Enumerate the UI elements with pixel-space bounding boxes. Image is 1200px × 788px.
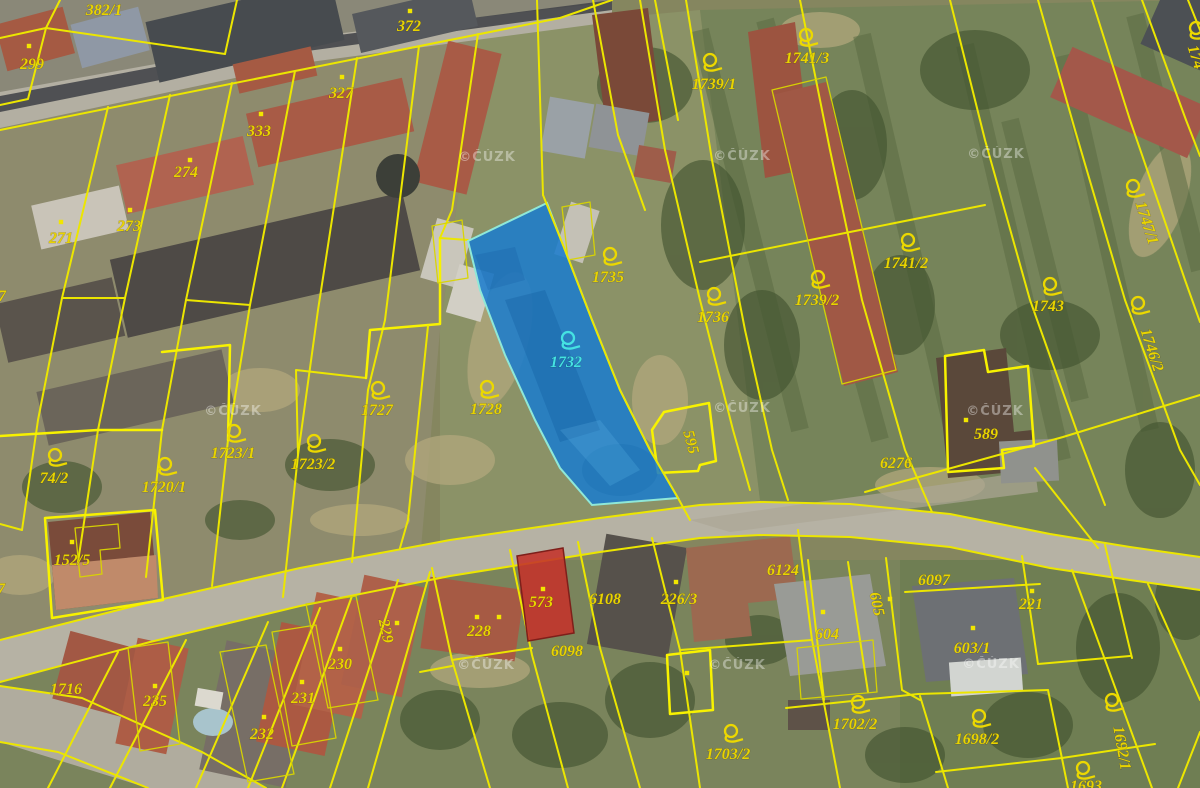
parcel-label: 299 <box>19 56 44 73</box>
parcel-label: 1741/3 <box>785 50 829 67</box>
building-point-icon <box>153 684 157 688</box>
parcel-label: 1698/2 <box>955 731 999 748</box>
cadastral-map-image[interactable]: 382/12993273332742732713721739/11741/317… <box>0 0 1200 788</box>
building-point-icon <box>475 615 479 619</box>
building-point-icon <box>541 587 545 591</box>
parcel-label: 333 <box>246 123 271 140</box>
parcel-label: 1735 <box>592 269 624 286</box>
parcel-label: 274 <box>173 164 198 181</box>
parcel-label: 1727 <box>361 402 394 419</box>
parcel-label: 221 <box>1018 596 1043 613</box>
parcel-label: 228 <box>466 623 491 640</box>
building-point-icon <box>674 580 678 584</box>
parcel-label: 1720/1 <box>142 479 186 496</box>
parcel-label: 273 <box>116 218 141 235</box>
parcel-label: 1702/2 <box>833 716 877 733</box>
parcel-label: 372 <box>396 18 421 35</box>
parcel-label: 1723/2 <box>291 456 335 473</box>
parcel-6098: 6098 <box>551 643 583 660</box>
cuzk-watermark: ©ČÚZK <box>962 656 1020 672</box>
map-viewport[interactable]: 382/12993273332742732713721739/11741/317… <box>0 0 1200 788</box>
parcel-6108: 6108 <box>589 591 621 608</box>
parcel-label: 271 <box>48 230 73 247</box>
building-point-icon <box>338 647 342 651</box>
parcel-label: 1703/2 <box>706 746 750 763</box>
parcel-label: 6098 <box>551 643 583 660</box>
parcel-label: 1693 <box>1070 778 1102 788</box>
parcel-label: 589 <box>974 426 998 443</box>
cuzk-watermark: ©ČÚZK <box>713 400 771 416</box>
building-point-icon <box>128 208 132 212</box>
parcel-6097: 6097 <box>918 572 951 589</box>
parcel-label: 226/3 <box>660 591 697 608</box>
parcel-label: 232 <box>249 726 274 743</box>
parcel-7: 7 <box>0 288 7 305</box>
parcel-6276: 6276 <box>880 455 912 472</box>
parcel-label: 327 <box>328 85 354 102</box>
building-point-icon <box>27 44 31 48</box>
parcel-label: 382/1 <box>85 2 122 19</box>
building-point-icon <box>408 9 412 13</box>
parcel-label: 6276 <box>880 455 912 472</box>
building-point-icon <box>497 615 501 619</box>
building-point-icon <box>262 715 266 719</box>
parcel-label: 1741/2 <box>884 255 928 272</box>
parcel-label: 152/5 <box>54 552 90 569</box>
building-point-icon <box>888 597 892 601</box>
parcel-label: 235 <box>142 693 167 710</box>
building-point-icon <box>188 158 192 162</box>
parcel-label: 6108 <box>589 591 621 608</box>
parcel-label: 1728 <box>470 401 502 418</box>
parcel-label: 1723/1 <box>211 445 255 462</box>
parcel-1716: 1716 <box>50 681 82 698</box>
parcel-label: 1716 <box>50 681 82 698</box>
building-point-icon <box>259 112 263 116</box>
parcel-label: 230 <box>327 656 352 673</box>
parcel-382-1: 382/1 <box>85 2 122 19</box>
parcel-label: 1732 <box>550 354 582 371</box>
building-point-icon <box>685 671 689 675</box>
parcel-label: 1739/2 <box>795 292 839 309</box>
parcel-label: 1736 <box>697 309 729 326</box>
parcel-label: 573 <box>529 594 553 611</box>
cuzk-watermark: ©ČÚZK <box>708 657 766 673</box>
parcel-label: 1743 <box>1032 298 1064 315</box>
parcel-label: 7 <box>0 288 7 305</box>
parcel-label: 6124 <box>767 562 799 579</box>
cuzk-watermark: ©ČÚZK <box>204 403 262 419</box>
parcel-6124: 6124 <box>767 562 799 579</box>
building-point-icon <box>70 540 74 544</box>
cuzk-watermark: ©ČÚZK <box>967 146 1025 162</box>
building-point-icon <box>300 680 304 684</box>
parcel-label: 6097 <box>918 572 951 589</box>
cuzk-watermark: ©ČÚZK <box>713 148 771 164</box>
cuzk-watermark: ©ČÚZK <box>458 149 516 165</box>
parcel-label: 603/1 <box>954 640 990 657</box>
building-point-icon <box>395 621 399 625</box>
building-point-icon <box>971 626 975 630</box>
building-point-icon <box>1030 589 1034 593</box>
cuzk-watermark: ©ČÚZK <box>457 657 515 673</box>
parcel-label: 1739/1 <box>692 76 736 93</box>
parcel-label: 74/2 <box>40 470 68 487</box>
building-point-icon <box>821 610 825 614</box>
parcel-label: 604 <box>815 626 839 643</box>
building-point-icon <box>340 75 344 79</box>
cuzk-watermark: ©ČÚZK <box>966 403 1024 419</box>
building-point-icon <box>59 220 63 224</box>
parcel-label: 231 <box>290 690 315 707</box>
